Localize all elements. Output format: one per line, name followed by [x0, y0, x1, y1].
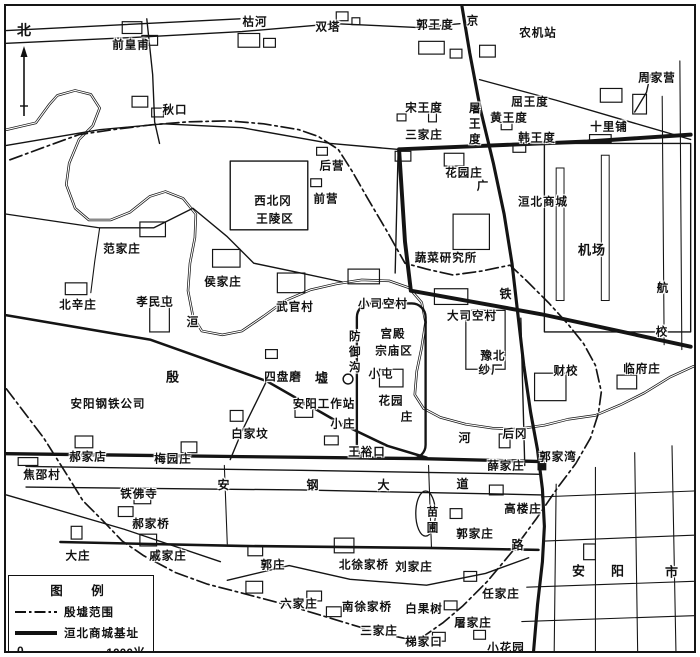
city-street [527, 581, 694, 587]
yinxu-boundary [6, 121, 601, 638]
map-label: 郭王度 [416, 20, 454, 32]
map-label: 宫殿 [381, 329, 406, 341]
map-label: 黄王度 [490, 113, 528, 125]
map-label: 大司空村 [447, 311, 497, 323]
map-label: 铁佛寺 [120, 489, 158, 501]
village-building [450, 49, 462, 58]
village-building [352, 18, 360, 25]
map-label: 郝家店 [69, 452, 107, 464]
road [6, 495, 220, 562]
map-label: 花园庄 [445, 168, 483, 180]
map-label: 焦邵村 [23, 470, 61, 482]
road [60, 542, 538, 550]
map-label: 豫北 [481, 351, 506, 363]
village-building [334, 538, 354, 553]
map-label: 宋王度 [405, 103, 443, 115]
map-label: 戚家庄 [149, 551, 187, 563]
yinxu-boundary-line-sample [15, 611, 57, 613]
map-label: 四盘磨 [264, 372, 302, 384]
map-label: 阳 [611, 565, 625, 578]
city-street [522, 616, 694, 622]
map-label: 后冈 [503, 429, 528, 441]
map-label: 苗 [427, 507, 440, 519]
airport-runway [556, 168, 564, 301]
scale-end: 1000米 [106, 644, 145, 653]
map-label: 小庄 [331, 419, 356, 431]
map-label: 双塔 [316, 22, 341, 34]
map-label: 花园 [379, 396, 404, 408]
map-label: 王裕口 [348, 447, 386, 459]
village-building [419, 41, 445, 54]
map-label: 秋口 [163, 105, 188, 117]
map-label: 广 [477, 181, 490, 193]
legend-box: 图 例 殷墟范围 洹北商城基址 0 1000米 [8, 575, 154, 653]
village-building [324, 436, 338, 445]
map-label: 南徐家桥 [342, 602, 392, 614]
north-arrow-icon [11, 40, 37, 124]
map-label: 路 [511, 539, 524, 551]
village-building [450, 509, 462, 519]
map-label: 宗庙区 [375, 346, 413, 358]
map-label: 三家庄 [405, 130, 443, 142]
map-label: 道 [456, 478, 469, 490]
map-label: 前营 [314, 194, 339, 206]
map-label: 屠家庄 [454, 618, 492, 630]
village-building [474, 630, 486, 639]
village-building [397, 114, 406, 121]
city-street [635, 453, 638, 651]
map-label: 屠王度 [467, 102, 479, 149]
north-label: 北 [11, 20, 37, 40]
map-label: 高楼庄 [504, 504, 542, 516]
map-label: 小司空村 [358, 299, 408, 311]
village-building [444, 153, 464, 166]
map-label: 六家庄 [280, 599, 318, 611]
field-line [680, 61, 682, 350]
map-label: 枯河 [243, 17, 268, 29]
map-label: 京 [467, 16, 480, 28]
map-label: 洹 [186, 316, 199, 328]
map-label: 武官村 [276, 302, 314, 314]
map-label: 庄 [401, 412, 414, 424]
legend-label-yinxu: 殷墟范围 [64, 604, 114, 620]
village-building [264, 38, 276, 47]
airport-boundary [544, 143, 690, 331]
village-building [266, 350, 278, 359]
map-label: 墟 [315, 372, 329, 385]
map-label: 防御沟 [347, 330, 359, 377]
map-label: 郭家庄 [456, 529, 494, 541]
village-building [248, 546, 263, 556]
field-line [662, 96, 664, 344]
village-building [230, 410, 243, 421]
village-building [617, 375, 637, 389]
village-building [336, 12, 348, 21]
village-building [311, 179, 322, 187]
map-label: 大 [377, 479, 390, 491]
city-street [554, 484, 556, 651]
map-canvas [6, 6, 694, 651]
map-label: 侯家庄 [204, 277, 242, 289]
scale-start: 0 [17, 644, 24, 653]
village-building [118, 507, 133, 517]
road [395, 151, 398, 273]
map-label: 任家庄 [482, 589, 520, 601]
legend-title: 图 例 [15, 580, 147, 599]
map-label: 大庄 [66, 551, 91, 563]
map-label: 财校 [554, 366, 579, 378]
village-building [75, 436, 93, 448]
map-label: 安阳工作站 [293, 399, 356, 411]
legend-item-yinxu: 殷墟范围 [15, 604, 147, 620]
huanbei-wall-line-sample [15, 631, 57, 635]
road [6, 315, 426, 457]
map-label: 校 [656, 327, 669, 339]
village-building [246, 581, 263, 593]
city-street [541, 491, 693, 497]
village-building [444, 601, 457, 610]
map-label: 临府庄 [623, 364, 661, 376]
village-building [480, 45, 496, 57]
map-label: 殷 [166, 371, 180, 384]
map-label: 屈王度 [511, 97, 549, 109]
village-building [453, 214, 489, 249]
map-label: 郭家湾 [539, 452, 577, 464]
village-building [181, 442, 197, 453]
village-building [317, 147, 328, 155]
map-label: 刘家庄 [395, 562, 433, 574]
map-label: 河 [458, 432, 471, 444]
map-label: 圃 [427, 523, 440, 535]
airport-runway [601, 155, 609, 300]
map-label: 范家庄 [103, 244, 141, 256]
map-label: 十里铺 [590, 122, 628, 134]
road [91, 228, 100, 293]
map-label: 韩王度 [518, 133, 556, 145]
map-label: 安 [217, 479, 230, 491]
map-label: 洹北商城 [518, 197, 568, 209]
legend-item-huanbei: 洹北商城基址 [15, 625, 147, 641]
map-label: 北徐家桥 [339, 560, 389, 572]
huanbei-wall-west [399, 149, 411, 290]
village-building [150, 306, 170, 332]
map-label: 周家营 [638, 73, 676, 85]
map-label: 钢 [306, 479, 319, 491]
village-building [65, 283, 87, 295]
road [480, 80, 691, 140]
map-label: 西北冈 [254, 196, 292, 208]
anyang-yinxu-map: 前皇甫枯河双塔郭王度京农机站周家营秋口宋王度屠王度屈王度黄王度韩王度三家庄十里铺… [4, 4, 696, 653]
village-building [600, 88, 622, 102]
map-label: 三家庄 [360, 626, 398, 638]
map-label: 北辛庄 [59, 300, 97, 312]
road [26, 466, 541, 474]
village-building [132, 96, 148, 107]
road [6, 19, 240, 31]
north-indicator: 北 [11, 20, 37, 129]
map-label: 农机站 [519, 28, 557, 40]
map-label: 市 [665, 566, 679, 579]
map-label: 前皇甫 [112, 40, 150, 52]
map-label: 蔬菜研究所 [415, 253, 478, 265]
village-building [238, 33, 260, 47]
map-label: 铁 [499, 288, 512, 300]
village-building [213, 249, 240, 267]
map-label: 薛家庄 [487, 461, 525, 473]
map-label: 后营 [320, 161, 345, 173]
map-label: 孝民屯 [136, 297, 174, 309]
map-label: 安 [572, 565, 586, 578]
map-label: 小花园 [487, 643, 525, 653]
map-label: 梯家口 [405, 637, 443, 649]
map-label: 郭庄 [261, 560, 286, 572]
city-street [544, 535, 693, 541]
village-building [71, 526, 82, 539]
map-label: 白家坟 [231, 429, 269, 441]
village-building [277, 273, 304, 293]
map-label: 机场 [578, 244, 606, 257]
map-label: 安阳钢铁公司 [71, 399, 146, 411]
map-label: 白果树 [405, 604, 443, 616]
map-label: 王陵区 [256, 214, 294, 226]
road [6, 124, 397, 150]
map-page: 前皇甫枯河双塔郭王度京农机站周家营秋口宋王度屠王度屈王度黄王度韩王度三家庄十里铺… [0, 0, 700, 657]
map-label: 航 [657, 283, 670, 295]
map-label: 梅园庄 [154, 454, 192, 466]
village-building [18, 458, 38, 466]
village-building [326, 607, 341, 617]
map-label: 小屯 [369, 369, 394, 381]
city-street [672, 446, 676, 651]
road [230, 381, 266, 460]
map-label: 郝家桥 [132, 519, 170, 531]
scale-labels: 0 1000米 [15, 644, 147, 653]
legend-label-huanbei: 洹北商城基址 [64, 625, 139, 641]
village-building [584, 544, 596, 560]
road [521, 318, 525, 465]
map-label: 纱厂 [479, 365, 504, 377]
